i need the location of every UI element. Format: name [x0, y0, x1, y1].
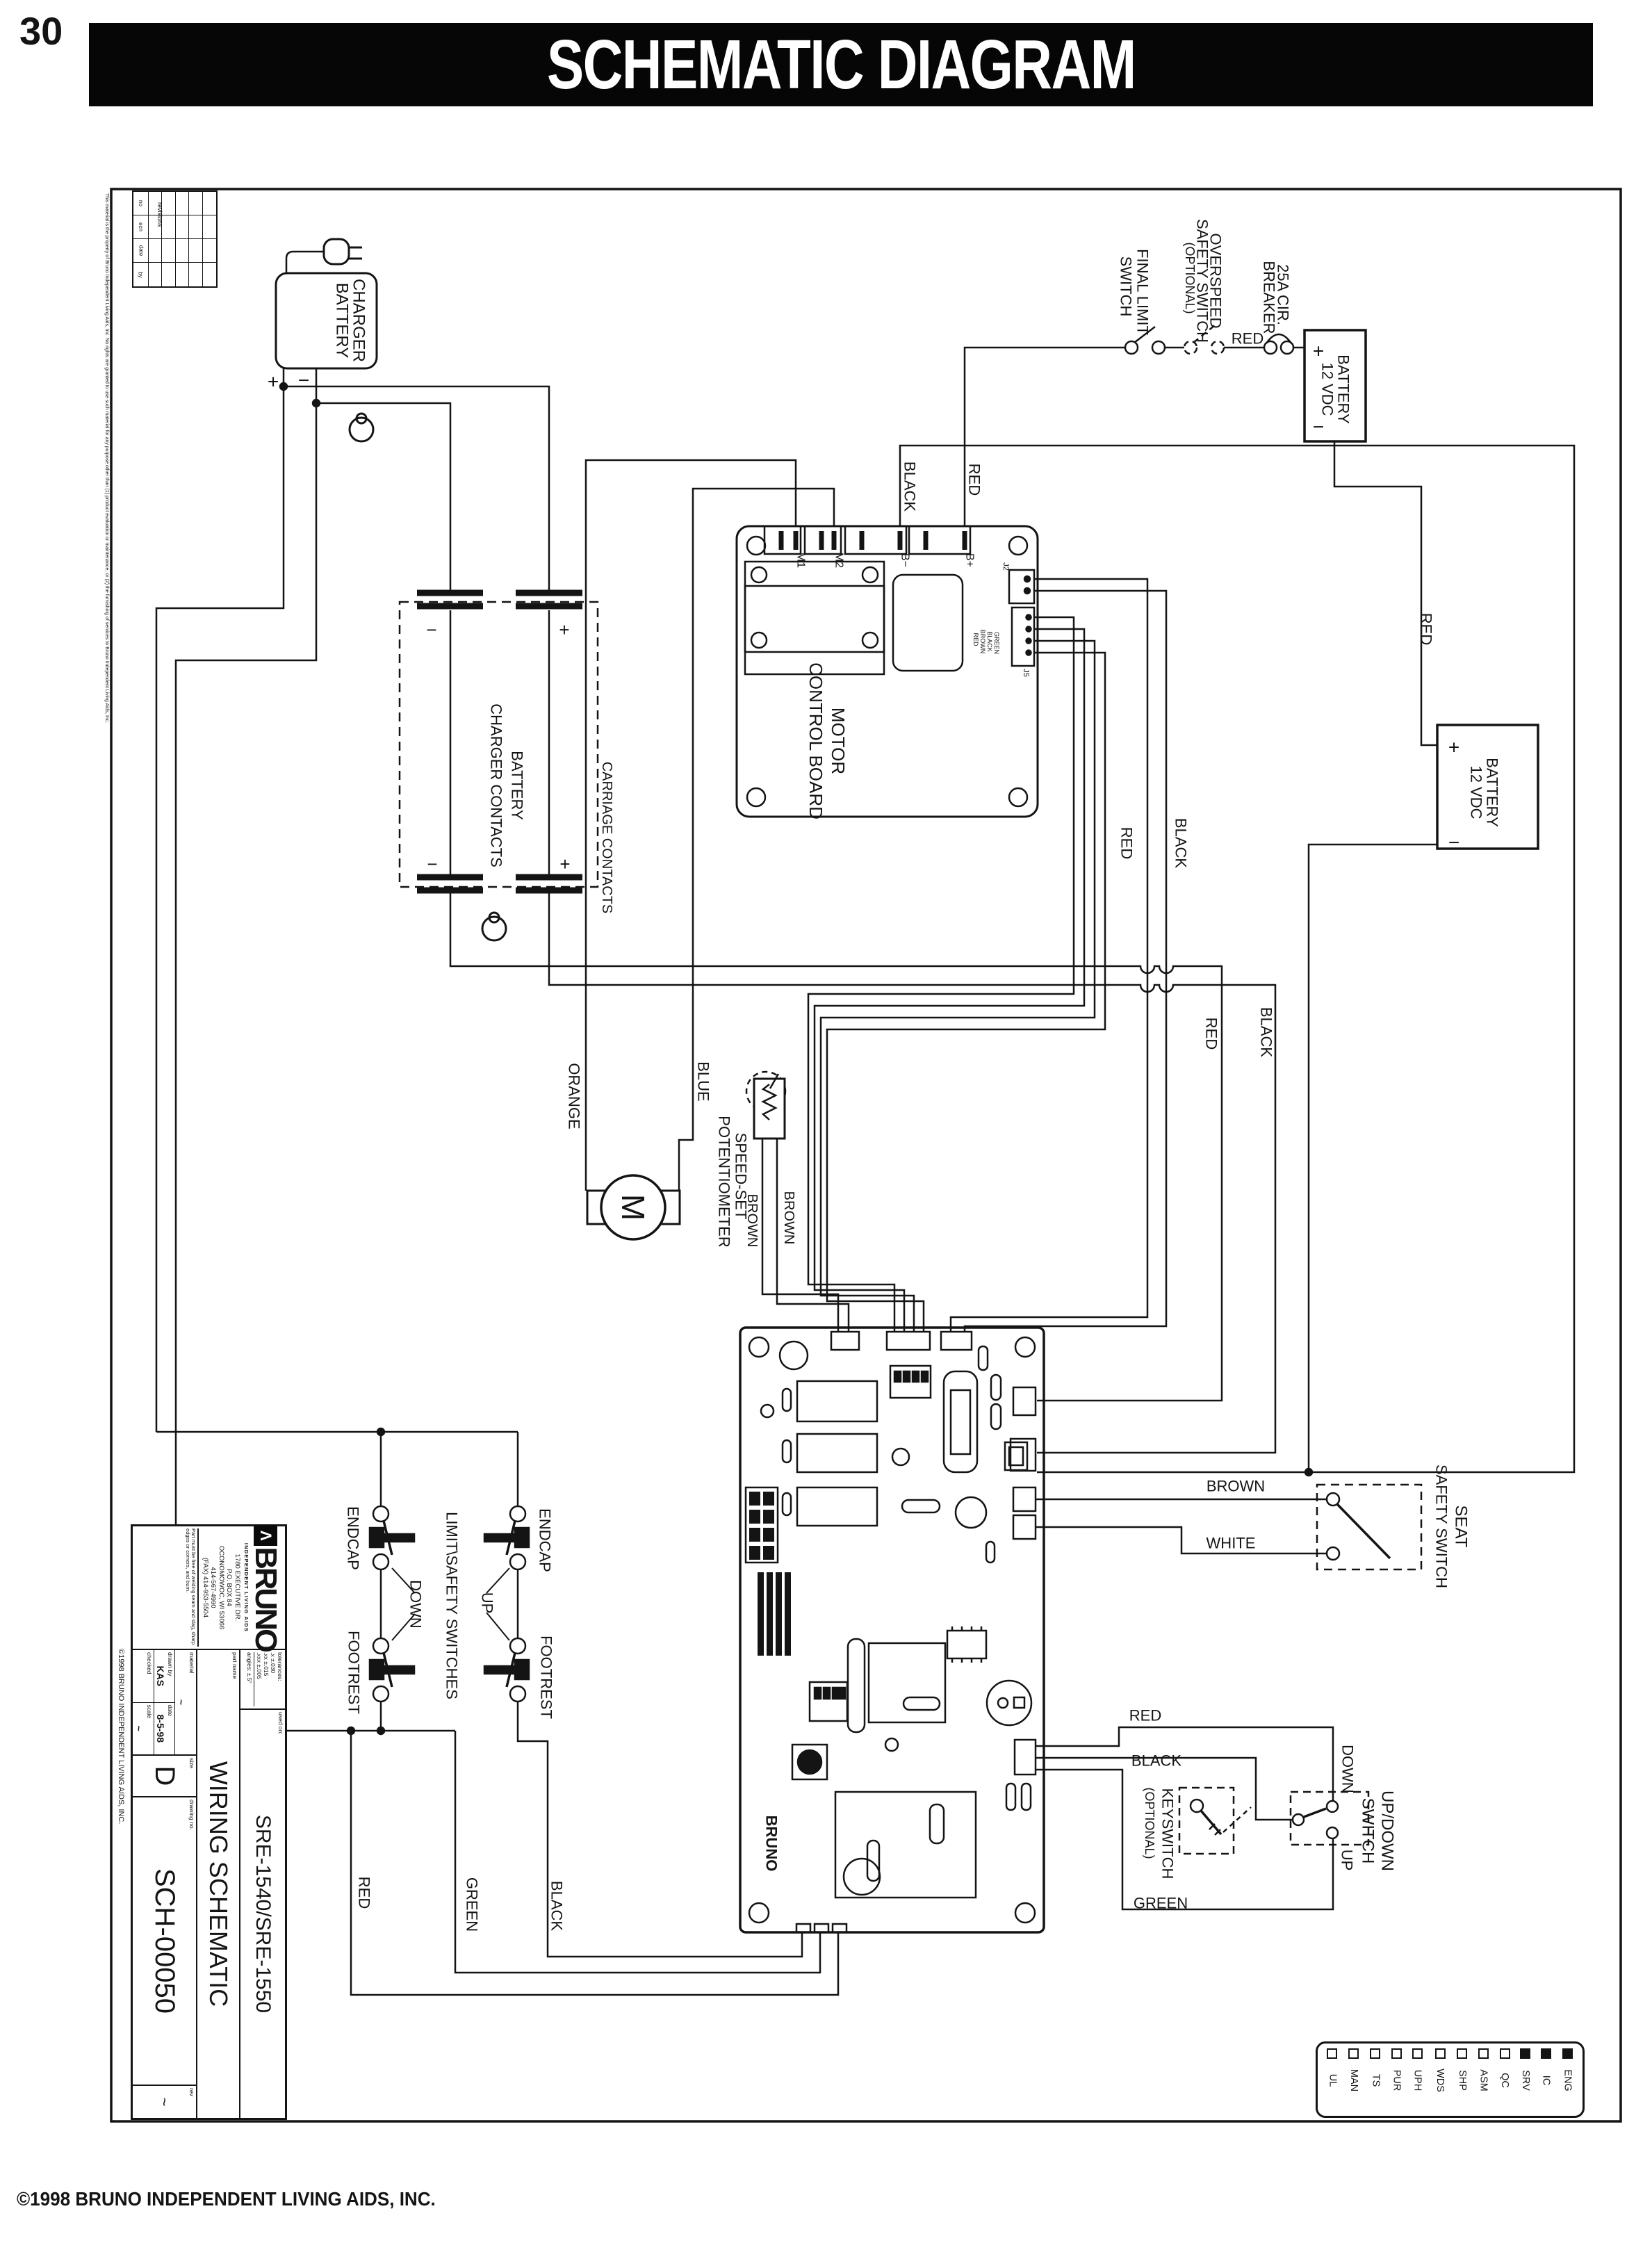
wire-j2-red: [951, 579, 1147, 1332]
svg-text:−: −: [1448, 832, 1459, 854]
svg-text:−: −: [427, 854, 437, 874]
tolerances-cell: tolerances: .x ±.030 .xx ±.015 .xxx ±.00…: [240, 1650, 285, 1710]
svg-text:RED: RED: [1418, 613, 1435, 645]
disclaimer-text: This material is the property of Bruno I…: [98, 193, 109, 770]
revisions-cell: [176, 239, 189, 263]
revisions-table: noecndateby: [132, 190, 218, 288]
svg-text:CHARGER CONTACTS: CHARGER CONTACTS: [488, 703, 505, 867]
legend-label: QC: [1499, 2073, 1510, 2088]
svg-text:BROWN: BROWN: [979, 630, 986, 654]
legend-label: SHP: [1457, 2070, 1468, 2091]
wire-charge-red: [450, 893, 1222, 1401]
svg-text:(OPTIONAL): (OPTIONAL): [1183, 242, 1197, 313]
keyswitch-label: KEYSWITCH: [1159, 1788, 1177, 1879]
svg-text:POTENTIOMETER: POTENTIOMETER: [716, 1116, 733, 1247]
battery1-label: 12 VDC: [1319, 362, 1336, 416]
legend-checkbox: [1457, 2048, 1467, 2059]
department-legend: ULMANTSPURUPHWDSSHPASMQCSRVICENG: [1316, 2041, 1585, 2118]
title-block-company: Λ BRUNO INDEPENDENT LIVING AIDS 1780 EXE…: [133, 1526, 285, 1650]
svg-text:M2: M2: [833, 553, 845, 568]
legend-label: ENG: [1562, 2069, 1573, 2091]
wire-updown-green: [1036, 1770, 1333, 1909]
revisions-cell: [149, 239, 162, 263]
fuse-icon: [944, 1371, 977, 1472]
svg-text:BLACK: BLACK: [1258, 1007, 1275, 1057]
svg-text:SWITCH: SWITCH: [1118, 256, 1135, 317]
checked-cell: checked: [133, 1650, 154, 1702]
legend-item-wds: WDS: [1428, 2048, 1452, 2114]
drawing-no-value: SCH-00050: [149, 1868, 180, 2014]
final-limit-label: FINAL LIMIT: [1134, 249, 1152, 335]
svg-text:UP: UP: [1339, 1850, 1356, 1871]
svg-text:+: +: [559, 619, 569, 640]
connector-seat: [1013, 1487, 1036, 1539]
legend-label: SRV: [1520, 2070, 1531, 2091]
revisions-cell: [162, 215, 175, 239]
svg-text:RED: RED: [966, 464, 983, 496]
svg-text:CONTROL BOARD: CONTROL BOARD: [805, 662, 826, 819]
legend-label: UPH: [1412, 2070, 1423, 2091]
wire-j5-harness: [808, 617, 1105, 1332]
wire-charger-plus: [284, 368, 549, 592]
legend-checkbox: [1562, 2048, 1573, 2059]
svg-text:RED: RED: [1118, 827, 1136, 859]
svg-text:−: −: [426, 619, 436, 640]
svg-text:ENDCAP: ENDCAP: [537, 1508, 554, 1572]
svg-text:M1: M1: [795, 553, 807, 568]
legend-checkbox: [1435, 2048, 1446, 2059]
blue-wire-label: BLUE: [695, 1061, 712, 1101]
svg-text:SWITCH: SWITCH: [1359, 1798, 1377, 1864]
revisions-cell: [189, 215, 202, 239]
revisions-header-no: no: [133, 192, 149, 215]
date-cell: date 8-5-98: [154, 1702, 175, 1755]
company-name: BRUNO: [248, 1547, 283, 1651]
terminal-array: [746, 1487, 791, 1656]
legend-label: PUR: [1391, 2070, 1402, 2091]
legend-item-ul: UL: [1322, 2048, 1343, 2114]
legend-checkbox: [1348, 2048, 1359, 2059]
svg-text:RED: RED: [356, 1877, 373, 1909]
svg-text:BROWN: BROWN: [781, 1191, 796, 1245]
svg-text:BROWN: BROWN: [1207, 1478, 1265, 1495]
title-block-note: Part must be free of welding seam and sl…: [185, 1528, 199, 1647]
legend-checkbox: [1412, 2048, 1423, 2059]
revisions-cell: [203, 215, 216, 239]
legend-item-man: MAN: [1343, 2048, 1365, 2114]
drawn-by-cell: drawn by KAS: [154, 1650, 175, 1702]
up-down-switch: [1291, 1792, 1368, 1845]
motor-control-board-label: MOTOR: [828, 708, 849, 774]
svg-text:DOWN: DOWN: [407, 1580, 425, 1629]
drawing-no-cell: drawing no. SCH-00050: [133, 1796, 196, 2085]
manual-page: 30 SCHEMATIC DIAGRAM: [0, 0, 1652, 2243]
used-on-cell: used on: SRE-1540/SRE-1550: [240, 1710, 285, 2118]
seat-switch-label: SEAT: [1452, 1506, 1471, 1548]
revisions-cell: [203, 263, 216, 286]
wire-updown-red: [1036, 1727, 1333, 1801]
address-line: P.O. BOX 84: [225, 1546, 234, 1629]
legend-item-uph: UPH: [1407, 2048, 1428, 2114]
legend-checkbox: [1370, 2048, 1380, 2059]
legend-label: IC: [1541, 2075, 1552, 2086]
legend-item-ic: IC: [1536, 2048, 1557, 2114]
wire-bplus-red: [965, 348, 1131, 526]
svg-text:−: −: [298, 370, 309, 391]
size-value: D: [149, 1766, 180, 1786]
svg-text:RED: RED: [972, 633, 979, 646]
svg-text:(OPTIONAL): (OPTIONAL): [1143, 1787, 1156, 1859]
legend-checkbox: [1478, 2048, 1489, 2059]
side-copyright: ©1998 BRUNO INDEPENDENT LIVING AIDS, INC…: [115, 1649, 125, 1857]
svg-text:BLACK: BLACK: [901, 462, 919, 512]
connector-j2: [1009, 570, 1034, 603]
svg-text:B+: B+: [964, 553, 976, 567]
svg-text:+: +: [1313, 341, 1324, 362]
carriage-contacts-label: CARRIAGE CONTACTS: [599, 762, 614, 914]
revisions-cell: [149, 215, 162, 239]
transformer-icon: [835, 1792, 976, 1898]
address-line: (FAX) 414-953-5504: [202, 1546, 210, 1629]
legend-checkbox: [1500, 2048, 1510, 2059]
legend-checkbox: [1541, 2048, 1551, 2059]
connector-j5: [1012, 607, 1034, 666]
title-block: Λ BRUNO INDEPENDENT LIVING AIDS 1780 EXE…: [131, 1524, 287, 2120]
svg-text:DOWN: DOWN: [1339, 1745, 1357, 1793]
revisions-cell: [162, 239, 175, 263]
dip-switch-icon: [890, 1366, 931, 1398]
svg-text:CHARGER: CHARGER: [350, 279, 368, 362]
limit-safety-label: LIMIT\SAFETY SWITCHES: [443, 1512, 461, 1699]
pcb-brand-label: BRUNO: [763, 1816, 780, 1872]
main-pcb: [740, 1328, 1044, 1932]
battery2-label: 12 VDC: [1468, 765, 1485, 819]
revisions-cell: [203, 192, 216, 215]
svg-text:BATTERY: BATTERY: [1335, 354, 1352, 424]
speed-set-potentiometer: [746, 1072, 785, 1139]
svg-text:ENDCAP: ENDCAP: [345, 1506, 362, 1570]
svg-text:UP: UP: [479, 1592, 496, 1614]
svg-text:+: +: [559, 854, 570, 874]
svg-text:BLACK: BLACK: [548, 1881, 566, 1931]
legend-checkbox: [1520, 2048, 1530, 2059]
revisions-cell: [149, 263, 162, 286]
motor-label: M: [615, 1194, 651, 1221]
ac-plug-icon: [324, 239, 362, 264]
push-button-icon: [792, 1745, 827, 1779]
revisions-header-date: date: [133, 239, 149, 263]
connector-3pin: [1015, 1740, 1036, 1775]
seat-safety-switch: [1317, 1485, 1421, 1569]
legend-item-ts: TS: [1365, 2048, 1386, 2114]
used-on-value: SRE-1540/SRE-1550: [251, 1815, 275, 2013]
size-cell: size D: [133, 1756, 196, 1796]
svg-text:−: −: [1313, 416, 1324, 438]
svg-text:FOOTREST: FOOTREST: [538, 1636, 555, 1719]
charger-label: BATTERY: [333, 283, 352, 358]
svg-text:BLACK: BLACK: [1131, 1752, 1181, 1770]
revisions-cell: [162, 192, 175, 215]
bruno-figure-icon: Λ: [254, 1525, 277, 1546]
led-icon: [761, 1405, 774, 1417]
address-line: 414-567-4990: [209, 1546, 218, 1629]
svg-text:BLACK: BLACK: [1172, 818, 1190, 868]
svg-text:+: +: [1448, 737, 1459, 758]
svg-text:BREAKER: BREAKER: [1261, 261, 1278, 334]
svg-text:BROWN: BROWN: [744, 1194, 760, 1248]
material-cell: material ~: [175, 1650, 196, 1754]
revisions-cell: [189, 263, 202, 286]
circuit-breaker: [1264, 334, 1293, 354]
revisions-cell: [189, 239, 202, 263]
revisions-cell: [203, 239, 216, 263]
svg-text:SAFETY SWITCH: SAFETY SWITCH: [1433, 1465, 1450, 1588]
address-line: OCONOMOWOC, WI 53066: [218, 1546, 226, 1629]
legend-item-asm: ASM: [1473, 2048, 1494, 2114]
scale-cell: scale ~: [133, 1702, 154, 1755]
svg-text:GREEN: GREEN: [1134, 1895, 1188, 1912]
revisions-header-ecn: ecn: [133, 215, 149, 239]
part-name-value: WIRING SCHEMATIC: [204, 1761, 233, 2007]
svg-text:+: +: [268, 371, 279, 393]
updown-switch-label: UP/DOWN: [1378, 1791, 1397, 1871]
svg-text:RED: RED: [1203, 1018, 1220, 1050]
orange-wire-label: ORANGE: [566, 1063, 583, 1129]
revisions-cell: [176, 192, 189, 215]
svg-text:WHITE: WHITE: [1207, 1535, 1256, 1552]
dip-switch-2-icon: [810, 1682, 847, 1721]
part-name-cell: part name WIRING SCHEMATIC: [196, 1650, 239, 2118]
legend-label: ASM: [1478, 2069, 1489, 2091]
legend-checkbox: [1391, 2048, 1402, 2059]
legend-item-srv: SRV: [1515, 2048, 1536, 2114]
rev-cell: rev ~: [133, 2085, 196, 2118]
svg-text:GREEN: GREEN: [993, 632, 1000, 654]
wire-bat2-minus: [1309, 845, 1437, 1472]
revisions-cell: [149, 192, 162, 215]
legend-checkbox: [1327, 2048, 1337, 2059]
svg-text:BATTERY: BATTERY: [1484, 758, 1501, 827]
revisions-cell: [176, 263, 189, 286]
svg-text:J5: J5: [1022, 669, 1030, 677]
ic-icon: [947, 1626, 986, 1663]
legend-label: WDS: [1434, 2069, 1446, 2092]
legend-item-eng: ENG: [1557, 2048, 1578, 2114]
svg-text:BLACK: BLACK: [986, 631, 993, 652]
legend-label: MAN: [1348, 2069, 1359, 2091]
revisions-cell: [162, 263, 175, 286]
svg-text:GREEN: GREEN: [464, 1877, 481, 1932]
revisions-cell: [176, 215, 189, 239]
legend-item-pur: PUR: [1386, 2048, 1407, 2114]
wire-bminus-black: [900, 446, 1574, 1472]
svg-text:RED: RED: [1129, 1707, 1161, 1724]
bottom-copyright: ©1998 BRUNO INDEPENDENT LIVING AIDS, INC…: [17, 2188, 436, 2210]
keyswitch: [1179, 1788, 1251, 1854]
charger-contacts-label: BATTERY: [509, 751, 526, 820]
revisions-header-by: by: [133, 263, 149, 286]
svg-text:RED: RED: [1232, 330, 1263, 348]
buzzer-icon: [987, 1681, 1031, 1725]
revisions-cell: [189, 192, 202, 215]
motor-control-board: [737, 526, 1038, 817]
connector-right-1: [1013, 1387, 1036, 1415]
wire-j2-black: [965, 591, 1166, 1332]
svg-text:B−: B−: [899, 553, 911, 567]
wire-seat-white: [1036, 1527, 1327, 1553]
svg-text:FOOTREST: FOOTREST: [345, 1631, 363, 1714]
legend-item-shp: SHP: [1452, 2048, 1473, 2114]
legend-item-qc: QC: [1494, 2048, 1515, 2114]
svg-text:J2: J2: [1001, 562, 1010, 571]
address-line: 1780 EXECUTIVE DR.: [234, 1546, 242, 1629]
legend-label: TS: [1370, 2074, 1381, 2087]
wire-charger-minus: [316, 368, 450, 592]
legend-label: UL: [1327, 2074, 1338, 2087]
wire-bat1-bat2-red: [1334, 441, 1437, 745]
